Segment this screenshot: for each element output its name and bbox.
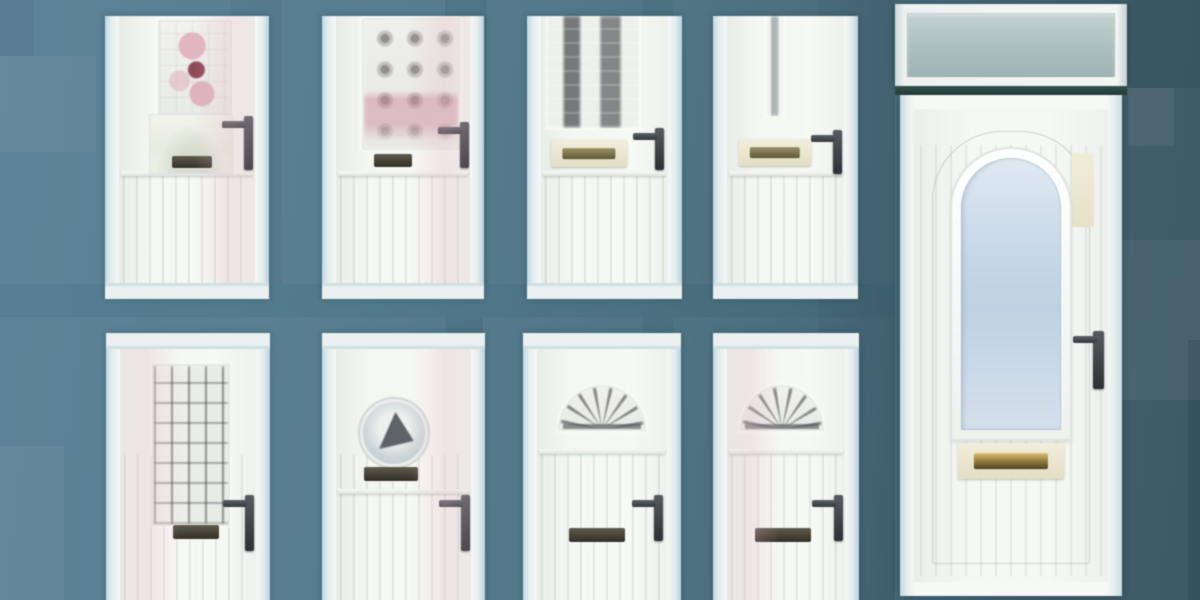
door-frame [105, 16, 269, 299]
door-grooves [340, 176, 466, 283]
porthole-window [360, 399, 428, 467]
door-panel-7 [523, 333, 681, 600]
floral-stained-glass-panel [158, 20, 232, 116]
door-panel-3 [527, 16, 682, 299]
door-slab [537, 349, 667, 600]
background-patch [1188, 340, 1200, 600]
door-rail [543, 171, 666, 176]
door-slab [119, 16, 255, 283]
large-door-unit [895, 4, 1127, 596]
door-handle [245, 495, 254, 551]
letterbox [755, 528, 811, 542]
door-frame [106, 333, 270, 600]
door-panel-4 [713, 16, 858, 299]
door-handle [655, 128, 664, 170]
door-panel-2 [322, 16, 484, 299]
slim-glass-strip [766, 16, 784, 116]
arch-glass [961, 158, 1061, 430]
background-patch [0, 0, 34, 56]
door-frame [322, 16, 484, 299]
leaded-strip-glass-panel [547, 16, 639, 128]
letterbox [569, 528, 625, 542]
door-handle [460, 122, 469, 168]
fanlight-glass [558, 385, 646, 431]
door-grooves [731, 176, 840, 283]
entrance-door [900, 95, 1122, 596]
letterbox [364, 467, 418, 481]
arch-window [952, 149, 1070, 439]
letterplate [739, 139, 811, 166]
door-rail [729, 171, 842, 176]
door-frame [322, 333, 485, 600]
letterplate [958, 443, 1064, 479]
transom-divider-bar [895, 86, 1127, 95]
door-slab [541, 16, 668, 283]
background-patch [1128, 88, 1174, 146]
background-patch [0, 56, 96, 152]
letterplate [551, 140, 627, 167]
background-patch [1127, 0, 1200, 88]
letterbox [374, 154, 412, 167]
letterbox-slot [750, 147, 800, 159]
door-frame [713, 16, 858, 299]
door-rail [729, 449, 843, 454]
letterbox-slot [562, 148, 615, 160]
door-grooves [545, 176, 664, 283]
door-panel-6 [322, 333, 485, 600]
door-frame [523, 333, 681, 600]
fanlight-glass [740, 385, 824, 431]
door-handle [834, 495, 843, 541]
door-collage-scene [0, 0, 1200, 600]
background-patch [0, 446, 64, 600]
door-slab [120, 349, 256, 600]
background-patch [1120, 240, 1200, 400]
door-rail [338, 489, 469, 494]
door-handle [654, 495, 663, 541]
door-rail [338, 171, 468, 176]
transom-glass [907, 13, 1115, 77]
door-handle [244, 116, 253, 170]
door-panel-5 [106, 333, 270, 600]
door-panel-8 [713, 333, 859, 600]
hinge-strip [1072, 153, 1094, 227]
transom-window [895, 4, 1127, 86]
letterbox [172, 156, 212, 168]
door-slab [914, 109, 1108, 582]
door-slab [727, 16, 844, 283]
door-rail [539, 449, 665, 454]
door-frame [527, 16, 682, 299]
door-slab [336, 349, 471, 600]
brass-letterbox-slot [974, 453, 1048, 469]
door-handle [833, 130, 842, 174]
door-grooves [123, 176, 251, 283]
door-slab [336, 16, 470, 283]
door-slab [727, 349, 845, 600]
door-handle [1093, 331, 1104, 389]
door-panel-1 [105, 16, 269, 299]
door-frame [713, 333, 859, 600]
letterbox [173, 525, 219, 539]
door-handle [461, 495, 470, 551]
leaded-grid-glass-panel [152, 364, 230, 526]
